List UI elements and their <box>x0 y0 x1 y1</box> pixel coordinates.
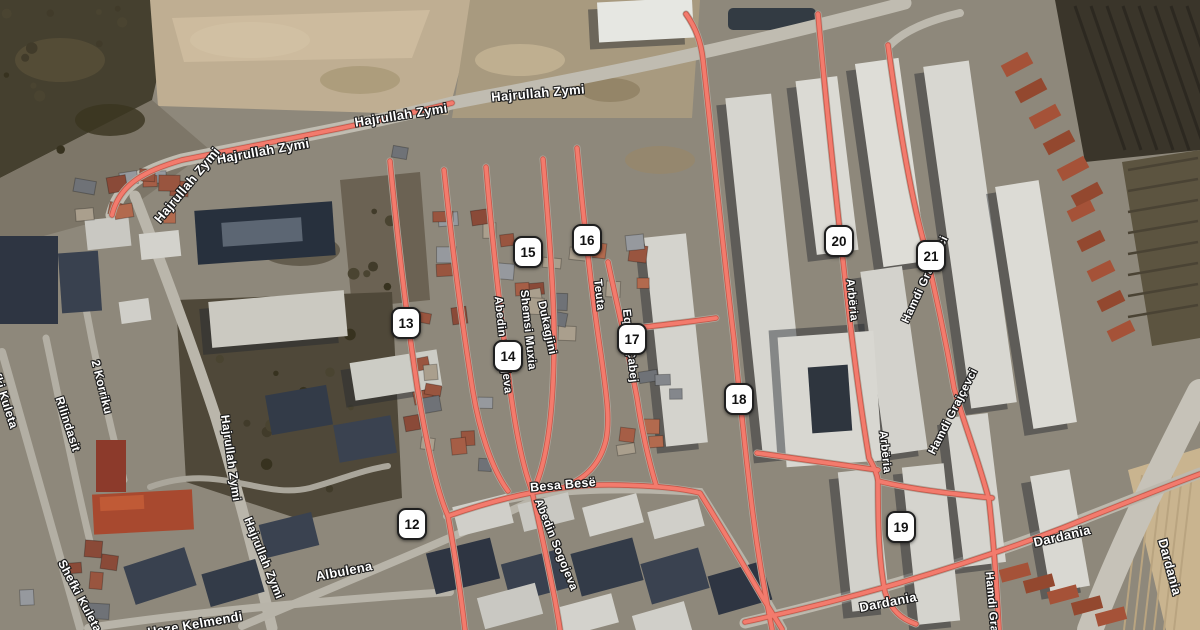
tree <box>96 40 103 47</box>
marker-number: 16 <box>579 233 594 248</box>
tree <box>34 90 45 101</box>
tree <box>384 283 392 291</box>
house-roof <box>616 443 635 456</box>
map-marker-19[interactable]: 19 <box>886 511 916 543</box>
tree <box>21 54 29 62</box>
house-roof <box>451 437 468 455</box>
tree <box>363 270 370 277</box>
orange-roof-highlight <box>100 495 145 511</box>
terrain-patch <box>320 66 400 94</box>
marker-number: 13 <box>398 316 413 331</box>
house-roof <box>637 278 649 288</box>
tree <box>56 145 65 154</box>
tree <box>216 355 224 363</box>
tree <box>117 17 127 27</box>
light-block <box>139 230 181 260</box>
map-marker-16[interactable]: 16 <box>572 224 602 256</box>
house-roof <box>19 589 34 605</box>
house-roof <box>655 374 671 385</box>
map-marker-17[interactable]: 17 <box>617 323 647 355</box>
tree <box>2 9 12 19</box>
house-roof <box>424 383 442 396</box>
house-roof <box>89 572 103 590</box>
marker-number: 14 <box>500 349 515 364</box>
house-roof <box>84 540 103 558</box>
map-marker-14[interactable]: 14 <box>493 340 523 372</box>
tree <box>26 42 38 54</box>
marker-number: 12 <box>404 517 419 532</box>
tree <box>348 268 360 280</box>
marker-number: 18 <box>731 392 746 407</box>
map-marker-21[interactable]: 21 <box>916 240 946 272</box>
tree <box>243 420 250 427</box>
tree <box>30 83 36 89</box>
marker-number: 21 <box>923 249 938 264</box>
house-roof <box>669 389 682 400</box>
terrain-patch <box>625 146 695 174</box>
house-roof <box>619 427 635 443</box>
terrain-patch <box>75 104 145 136</box>
tree <box>326 485 333 492</box>
street-label: Teuta <box>591 279 606 311</box>
dark-block <box>0 236 58 324</box>
light-block <box>85 216 132 250</box>
courtyard-hole <box>808 365 853 434</box>
satellite-layer <box>0 0 1200 630</box>
map-marker-20[interactable]: 20 <box>824 225 854 257</box>
marker-number: 19 <box>893 520 908 535</box>
marker-number: 17 <box>624 332 639 347</box>
light-block <box>119 298 152 324</box>
house-roof <box>403 414 420 431</box>
apartment-slab <box>597 0 694 42</box>
map-marker-15[interactable]: 15 <box>513 236 543 268</box>
house-roof <box>391 145 408 159</box>
terrain-patch <box>475 44 565 76</box>
house-roof <box>649 435 664 447</box>
house-roof <box>100 554 118 571</box>
brick-building <box>96 440 126 492</box>
house-roof <box>625 234 645 251</box>
tree <box>115 6 121 12</box>
terrain-patch <box>190 22 310 58</box>
marker-number: 20 <box>831 234 846 249</box>
house-roof <box>478 397 493 408</box>
dark-block <box>58 251 102 314</box>
map-marker-18[interactable]: 18 <box>724 383 754 415</box>
map-marker-12[interactable]: 12 <box>397 508 427 540</box>
map-marker-13[interactable]: 13 <box>391 307 421 339</box>
tree <box>96 9 102 15</box>
tree <box>47 10 54 17</box>
tree <box>325 368 334 377</box>
map-canvas[interactable]: Hajrullah ZymiHajrullah ZymiHajrullah Zy… <box>0 0 1200 630</box>
house-roof <box>423 364 438 380</box>
tree <box>368 262 378 272</box>
tree <box>273 371 278 376</box>
house-roof <box>75 208 94 222</box>
house-roof <box>558 326 576 341</box>
tree <box>371 209 377 215</box>
tree <box>261 458 272 469</box>
marker-number: 15 <box>520 245 535 260</box>
tree <box>4 72 9 77</box>
